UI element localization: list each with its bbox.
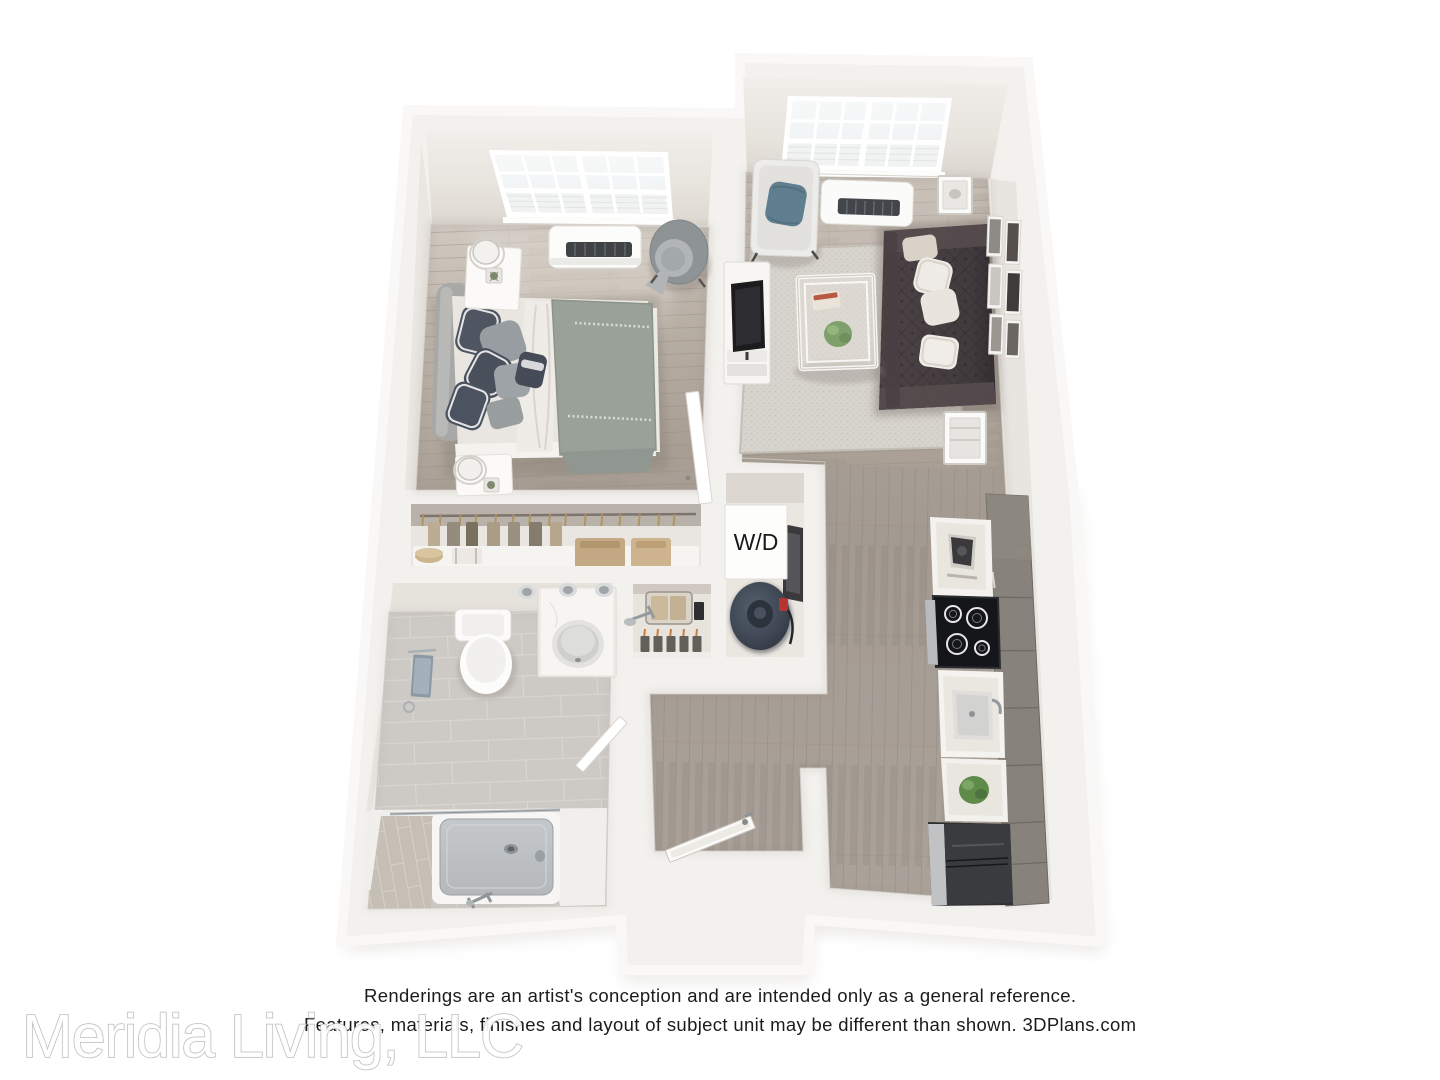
svg-text:Meridia Living, LLC: Meridia Living, LLC	[22, 1002, 524, 1070]
svg-text:W/D: W/D	[734, 529, 779, 555]
